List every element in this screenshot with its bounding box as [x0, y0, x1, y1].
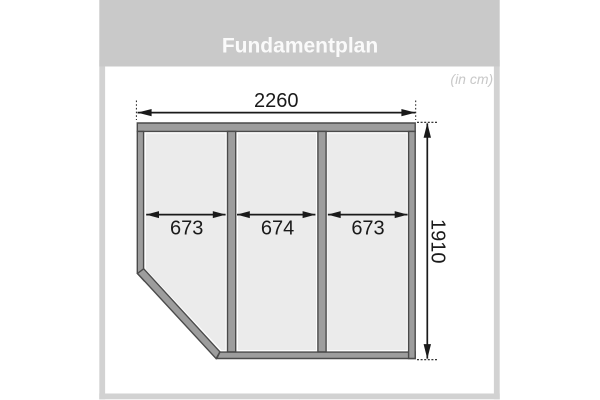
svg-text:673: 673	[351, 217, 384, 239]
svg-text:673: 673	[170, 217, 203, 239]
svg-text:1910: 1910	[426, 219, 448, 264]
svg-text:674: 674	[261, 217, 294, 239]
svg-text:2260: 2260	[254, 90, 299, 112]
svg-text:(in cm): (in cm)	[450, 71, 493, 87]
svg-text:Fundamentplan: Fundamentplan	[222, 35, 378, 58]
